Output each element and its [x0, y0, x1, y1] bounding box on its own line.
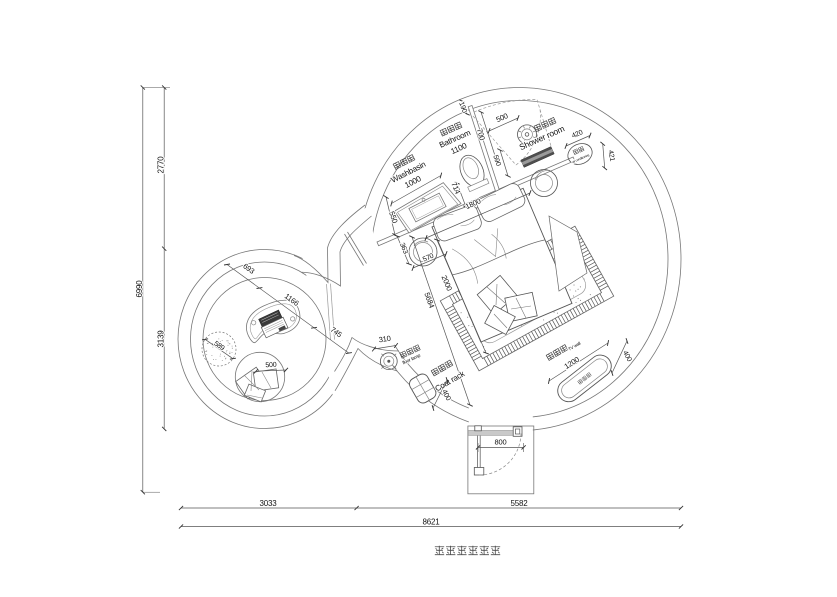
svg-text:8621: 8621	[423, 518, 441, 527]
svg-text:3139: 3139	[157, 330, 166, 348]
svg-text:800: 800	[495, 438, 507, 447]
svg-text:2770: 2770	[157, 156, 166, 174]
svg-text:5582: 5582	[511, 499, 529, 508]
svg-text:3033: 3033	[260, 499, 278, 508]
svg-text:500: 500	[265, 362, 277, 370]
svg-text:6990: 6990	[135, 280, 144, 298]
svg-text:310: 310	[378, 334, 391, 345]
